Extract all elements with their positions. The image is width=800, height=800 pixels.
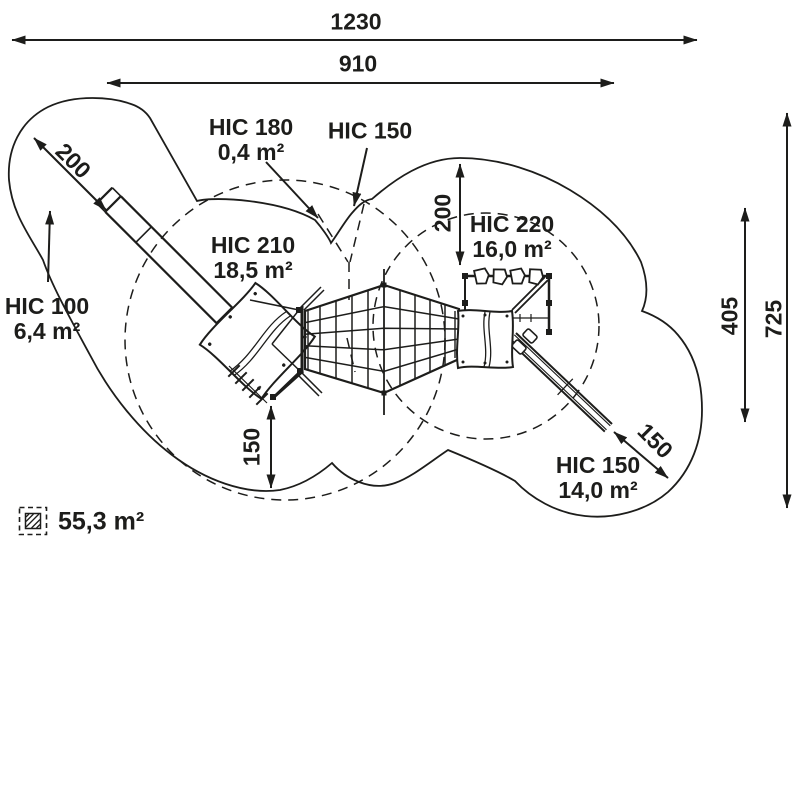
zone-label-hic150-bottom: HIC 150 14,0 m² <box>556 453 640 503</box>
legend-dashed-box <box>20 508 47 535</box>
arrow-hic100 <box>48 211 50 282</box>
legend-swatch <box>20 508 47 535</box>
net-horizontals <box>305 307 459 372</box>
slide-section-line <box>558 379 573 395</box>
playground-safety-plan: 1230 910 200 200 150 150 405 725 HIC 180… <box>0 0 800 800</box>
tube-section-line <box>136 227 152 243</box>
dim-label-150-bottom: 150 <box>240 428 265 466</box>
dim-label-725: 725 <box>762 300 787 338</box>
arrow-hic150-top <box>354 148 367 206</box>
zone-label-hic210: HIC 210 18,5 m² <box>211 233 295 283</box>
right-slide <box>509 328 612 431</box>
zone-label-hic180: HIC 180 0,4 m² <box>209 115 293 165</box>
zone-notch-dashes <box>318 214 348 262</box>
dim-label-1230: 1230 <box>330 10 381 35</box>
zone-label-hic150-top: HIC 150 <box>328 119 412 144</box>
zone-label-hic220: HIC 220 16,0 m² <box>470 212 554 262</box>
left-platform <box>199 281 317 399</box>
legend-total-area: 55,3 m² <box>58 508 144 537</box>
dim-label-910: 910 <box>339 52 377 77</box>
right-platform <box>457 310 513 368</box>
dim-label-405: 405 <box>718 297 743 335</box>
dim-label-200-right: 200 <box>431 194 456 232</box>
zone-label-hic100: HIC 100 6,4 m² <box>5 294 89 344</box>
